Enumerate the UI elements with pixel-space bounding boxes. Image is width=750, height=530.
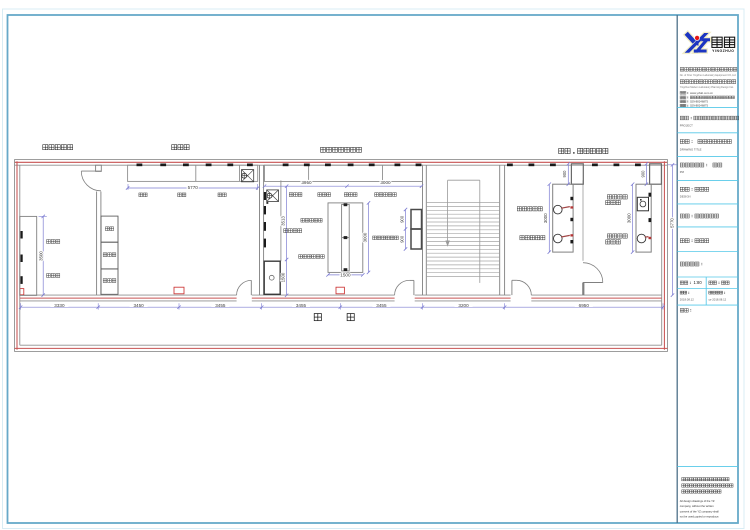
svg-text:1:80: 1:80 [694,280,703,285]
svg-text:company, without the written: company, without the written [680,504,714,508]
svg-text:not be used,copied or reproduc: not be used,copied or reproduce. [680,515,720,519]
svg-text:900: 900 [562,170,567,178]
svg-text:3455: 3455 [376,303,387,308]
svg-text:3000: 3000 [543,213,548,223]
svg-text:PROJECT: PROJECT [680,124,693,128]
svg-text:yz-2018.08.12: yz-2018.08.12 [709,298,727,302]
svg-text:3200: 3200 [458,303,469,308]
svg-text:3000: 3000 [627,213,632,223]
svg-text:Yingzhuo Modern Laboratory Pla: Yingzhuo Modern Laboratory Planning Desi… [680,86,734,89]
svg-text:900: 900 [399,215,404,223]
svg-text:No. of Xi'an Yingzhuo Laborato: No. of Xi'an Yingzhuo Laboratory Equipme… [680,74,737,77]
svg-text:1500: 1500 [280,272,285,282]
svg-text:6950: 6950 [579,303,590,308]
svg-text:3450: 3450 [133,303,144,308]
svg-text:DRAWING TITLE: DRAWING TITLE [680,147,702,151]
svg-text:3330: 3330 [54,303,65,308]
svg-text:5770: 5770 [188,185,199,190]
svg-text:3500: 3500 [38,251,43,261]
svg-text:3000: 3000 [380,180,391,185]
svg-text:3000: 3000 [363,232,368,242]
svg-text:2018.08.12: 2018.08.12 [680,298,694,302]
svg-text:PM: PM [680,170,685,174]
svg-text:900: 900 [640,170,645,178]
svg-text:5770: 5770 [669,218,674,228]
svg-text:consent of the YZ company shal: consent of the YZ company shall [680,509,719,513]
svg-text:All design drawings of the YZ: All design drawings of the YZ [680,499,715,503]
svg-text:900: 900 [399,235,404,243]
svg-text:DESIGN: DESIGN [680,194,691,198]
svg-text:1500: 1500 [340,273,351,278]
svg-text:3513: 3513 [280,216,285,226]
svg-text:www.yzlab.com.cn: www.yzlab.com.cn [690,91,713,95]
svg-text:YINGZHUO: YINGZHUO [712,49,734,53]
svg-text:3455: 3455 [215,303,226,308]
svg-text:3455: 3455 [296,303,307,308]
svg-text:029-88246875: 029-88246875 [690,104,708,108]
svg-text:3950: 3950 [301,180,312,185]
